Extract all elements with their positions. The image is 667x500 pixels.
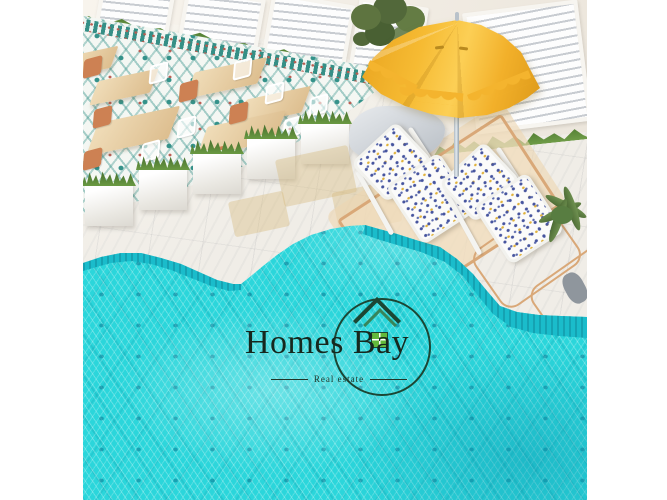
render-canvas: Homes Bay Real estate [0,0,667,500]
pool-terrace-photo: Homes Bay Real estate [83,0,587,500]
parasol-finial [455,12,459,21]
planter-box [193,150,241,194]
brand-tagline: Real estate [314,374,364,384]
brand-name: Homes Bay [245,324,475,362]
planter-box [85,182,133,226]
marble-slab-patch [228,191,290,238]
palm-center [551,206,573,224]
palm-plant [533,186,587,270]
watermark: Homes Bay Real estate [233,292,473,394]
tagline-rule-right [370,379,407,380]
tagline-rule-left [271,379,308,380]
brand-tagline-row: Real estate [271,374,407,384]
planter-box [139,166,187,210]
